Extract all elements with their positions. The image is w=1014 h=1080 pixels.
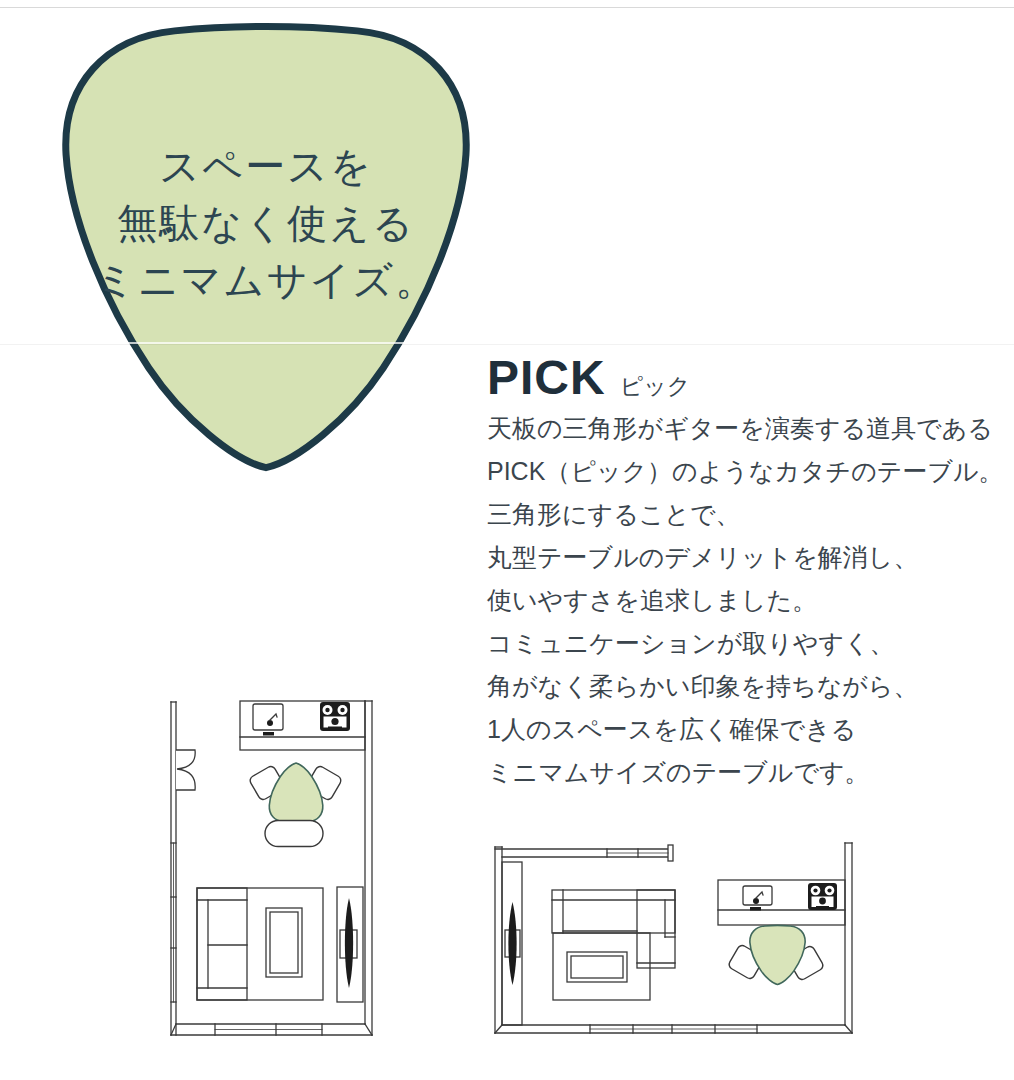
kitchen-counter [240, 701, 365, 750]
room-walls [171, 701, 372, 1035]
floorplan-left [165, 692, 383, 1050]
top-divider-line [0, 7, 1014, 8]
hero-pick-graphic: スペースを 無駄なく使える ミニマムサイズ。 [48, 20, 484, 472]
hero-caption-line-2: 無駄なく使える [48, 195, 484, 252]
tv-board [337, 887, 363, 1002]
kitchen-counter [718, 880, 845, 925]
stove-icon [808, 883, 837, 910]
rug [197, 888, 323, 1000]
product-title-kana: ピック [620, 371, 691, 402]
coffee-table [567, 952, 627, 982]
door-icon [176, 750, 195, 790]
floorplan-right [490, 840, 862, 1040]
product-title-row: PICK ピック [487, 350, 690, 405]
product-description: 天板の三角形がギターを演奏する道具である PICK（ピック）のようなカタチのテー… [487, 407, 1014, 794]
left-wall [171, 702, 176, 1035]
tv-icon [508, 902, 516, 985]
hero-caption-line-1: スペースを [48, 138, 484, 195]
product-description-page: スペースを 無駄なく使える ミニマムサイズ。 PICK ピック 天板の三角形がギ… [0, 0, 1014, 1080]
dining-set [248, 763, 342, 847]
tv-icon [345, 898, 353, 988]
sink-icon [743, 886, 772, 911]
hero-caption-line-3: ミニマムサイズ。 [48, 252, 484, 309]
product-title: PICK [487, 350, 606, 405]
living-set [552, 890, 675, 1000]
sofa [197, 888, 247, 1000]
coffee-table [266, 908, 302, 977]
sink-icon [253, 704, 283, 736]
hero-caption: スペースを 無駄なく使える ミニマムサイズ。 [48, 138, 484, 309]
living-set [197, 887, 363, 1002]
section-divider-line [0, 342, 1014, 344]
stove-icon [320, 702, 350, 731]
tv-board [502, 862, 522, 1025]
bench [265, 821, 323, 847]
dining-set [727, 925, 824, 984]
